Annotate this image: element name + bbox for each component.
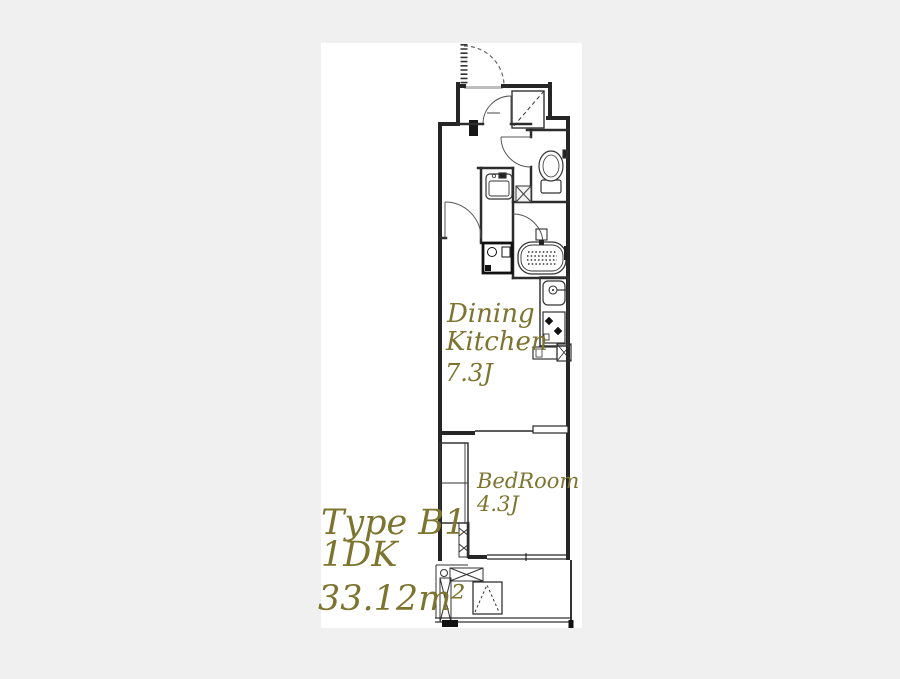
utility-mark	[485, 265, 491, 271]
sliding-door	[533, 426, 568, 433]
balcony-step-block	[442, 620, 458, 627]
floor-plan-page: Dining Kitchen 7.3J BedRoom 4.3J Type B1…	[0, 0, 900, 675]
toilet-remote	[563, 150, 567, 158]
bedroom-size-label: 4.3J	[476, 492, 520, 516]
dk-label-line2: Kitchen	[445, 327, 548, 357]
pipe-space	[516, 186, 531, 202]
wall-pier	[469, 120, 478, 136]
bath-towel-bar	[564, 246, 568, 260]
bedroom-label: BedRoom	[476, 469, 579, 493]
plan-area-label: 33.12m²	[318, 579, 465, 619]
dk-label-line1: Dining	[446, 299, 535, 329]
washbasin-faucet	[499, 173, 506, 178]
floor-plan: Dining Kitchen 7.3J BedRoom 4.3J Type B1…	[0, 0, 900, 675]
plan-layout-label: 1DK	[321, 535, 399, 575]
dk-size-label: 7.3J	[445, 359, 494, 387]
